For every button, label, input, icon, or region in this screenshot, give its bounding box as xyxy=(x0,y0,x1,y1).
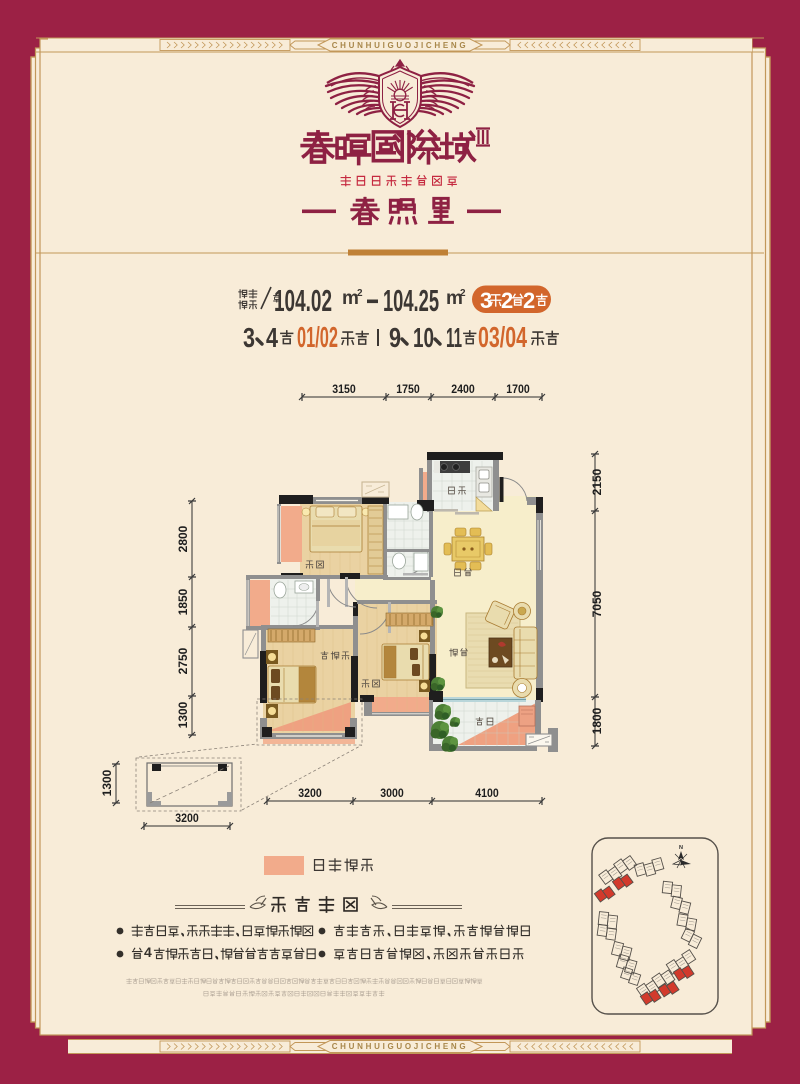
svg-text:1750: 1750 xyxy=(396,383,419,396)
svg-text:01/02: 01/02 xyxy=(297,322,338,354)
svg-text:CHUNHUIGUOJICHENG: CHUNHUIGUOJICHENG xyxy=(332,41,469,50)
svg-text:7050: 7050 xyxy=(590,590,604,617)
svg-text:1300: 1300 xyxy=(176,701,190,728)
svg-text:9: 9 xyxy=(389,322,401,353)
svg-text:03/04: 03/04 xyxy=(478,322,527,354)
svg-text:3200: 3200 xyxy=(298,787,321,800)
svg-text:2: 2 xyxy=(501,288,513,313)
svg-text:3150: 3150 xyxy=(332,383,355,396)
svg-text:2800: 2800 xyxy=(176,525,190,552)
svg-text:2150: 2150 xyxy=(590,468,604,495)
svg-text:3: 3 xyxy=(243,322,255,353)
svg-text:2750: 2750 xyxy=(176,647,190,674)
svg-text:4: 4 xyxy=(144,944,152,960)
svg-text:11: 11 xyxy=(446,322,462,353)
svg-text:3200: 3200 xyxy=(175,812,198,825)
svg-text:4100: 4100 xyxy=(475,787,498,800)
svg-text:N: N xyxy=(679,845,683,851)
svg-text:1850: 1850 xyxy=(176,588,190,615)
svg-text:2400: 2400 xyxy=(451,383,474,396)
svg-text:CHUNHUIGUOJICHENG: CHUNHUIGUOJICHENG xyxy=(332,1042,469,1051)
svg-text:1700: 1700 xyxy=(506,383,529,396)
svg-text:2: 2 xyxy=(523,288,535,313)
svg-text:104.02: 104.02 xyxy=(274,284,332,318)
svg-text:3000: 3000 xyxy=(380,787,403,800)
svg-text:2: 2 xyxy=(460,288,466,299)
svg-text:104.25: 104.25 xyxy=(383,284,439,318)
svg-text:10: 10 xyxy=(413,322,434,353)
svg-text:1800: 1800 xyxy=(590,707,604,734)
svg-text:4: 4 xyxy=(266,322,278,353)
svg-text:2: 2 xyxy=(357,288,363,299)
svg-text:1300: 1300 xyxy=(100,769,114,796)
